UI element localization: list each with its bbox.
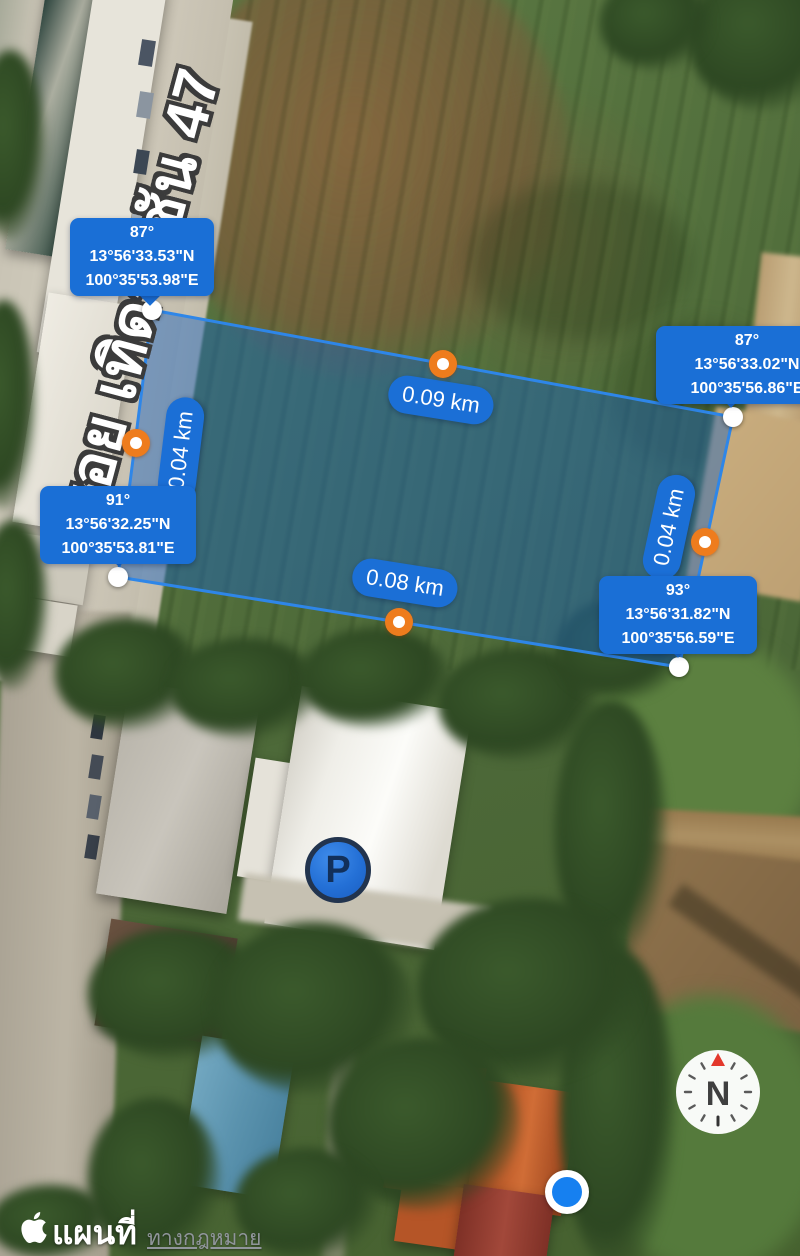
- corner-callout-bottom-left[interactable]: 91° 13°56'32.25"N 100°35'53.81"E: [40, 486, 196, 564]
- vertex-dot-bottom-right[interactable]: [669, 657, 689, 677]
- corner-callout-top-left[interactable]: 87° 13°56'33.53"N 100°35'53.98"E: [70, 218, 214, 296]
- midpoint-handle-bottom[interactable]: [385, 608, 413, 636]
- corner-latitude: 13°56'31.82"N: [603, 603, 753, 627]
- midpoint-handle-left[interactable]: [122, 429, 150, 457]
- midpoint-handle-right[interactable]: [691, 528, 719, 556]
- corner-latitude: 13°56'32.25"N: [44, 513, 192, 537]
- parking-poi-marker[interactable]: P: [305, 837, 371, 903]
- vertex-dot-bottom-left[interactable]: [108, 567, 128, 587]
- corner-longitude: 100°35'53.98"E: [74, 269, 210, 293]
- corner-angle: 91°: [44, 489, 192, 513]
- corner-latitude: 13°56'33.02"N: [660, 353, 800, 377]
- parking-letter: P: [325, 849, 350, 892]
- corner-angle: 93°: [603, 579, 753, 603]
- apple-logo-icon: [21, 1212, 47, 1248]
- compass-north-letter: N: [706, 1075, 731, 1113]
- corner-longitude: 100°35'56.59"E: [603, 627, 753, 651]
- compass-button[interactable]: N: [676, 1050, 760, 1139]
- corner-latitude: 13°56'33.53"N: [74, 245, 210, 269]
- legal-link[interactable]: ทางกฎหมาย: [147, 1222, 262, 1255]
- corner-angle: 87°: [660, 329, 800, 353]
- corner-callout-top-right[interactable]: 87° 13°56'33.02"N 100°35'56.86"E: [656, 326, 800, 404]
- map-canvas[interactable]: ซอย เทิดราชัน 47 0.09 km 0.04 km 0.08 km…: [0, 0, 800, 1256]
- corner-callout-bottom-right[interactable]: 93° 13°56'31.82"N 100°35'56.59"E: [599, 576, 757, 654]
- vertex-dot-top-right[interactable]: [723, 407, 743, 427]
- app-name-watermark: แผนที่: [52, 1206, 137, 1256]
- corner-angle: 87°: [74, 221, 210, 245]
- corner-longitude: 100°35'53.81"E: [44, 537, 192, 561]
- midpoint-handle-top[interactable]: [429, 350, 457, 378]
- corner-longitude: 100°35'56.86"E: [660, 377, 800, 401]
- user-location-dot: [545, 1170, 589, 1214]
